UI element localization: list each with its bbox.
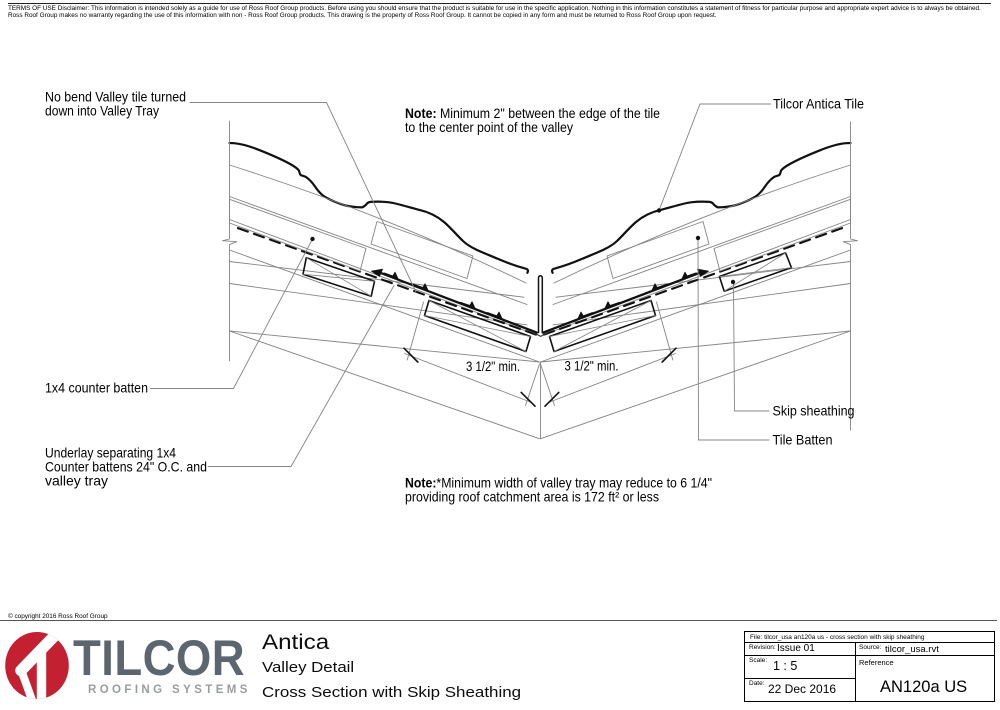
- svg-text:providing roof catchment area: providing roof catchment area is 172 ft²…: [405, 489, 659, 505]
- svg-text:Tile Batten: Tile Batten: [773, 432, 833, 448]
- svg-text:down into Valley Tray: down into Valley Tray: [45, 103, 159, 119]
- svg-text:to the center point of the val: to the center point of the valley: [405, 119, 573, 135]
- svg-text:3 1/2" min.: 3 1/2" min.: [466, 358, 520, 374]
- svg-text:valley tray: valley tray: [45, 473, 108, 489]
- svg-text:Skip sheathing: Skip sheathing: [773, 403, 855, 419]
- svg-text:3 1/2" min.: 3 1/2" min.: [565, 357, 619, 373]
- svg-text:Tilcor Antica Tile: Tilcor Antica Tile: [773, 96, 864, 112]
- svg-text:1x4 counter batten: 1x4 counter batten: [45, 380, 148, 396]
